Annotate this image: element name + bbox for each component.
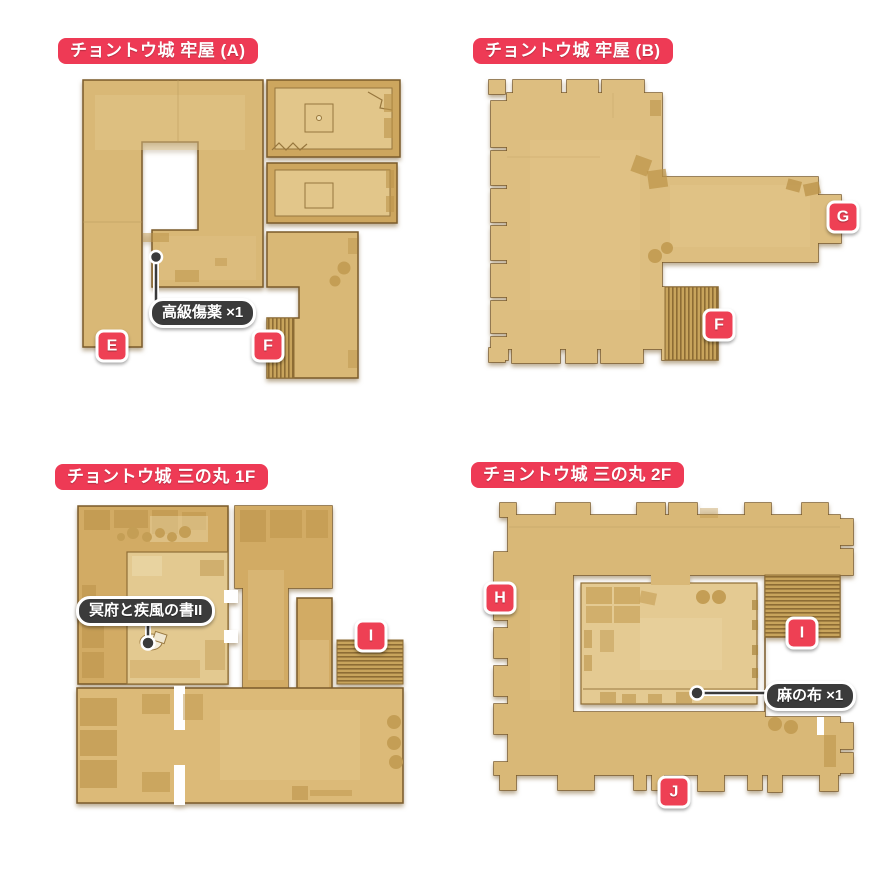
marker-i-1f: I [355, 620, 388, 653]
map-title-rouya-b: チョントウ城 牢屋 (B) [473, 38, 673, 64]
maps-artwork [0, 0, 880, 880]
item-label-meifu-sho: 冥府と疾風の書II [76, 596, 215, 626]
marker-e: E [96, 330, 129, 363]
floorplan-sannomaru-1f [77, 506, 403, 805]
marker-i-2f: I [786, 617, 819, 650]
marker-g: G [827, 201, 860, 234]
floorplan-rouya-a [83, 80, 400, 378]
marker-f-map-b: F [703, 309, 736, 342]
guide-map-page: チョントウ城 牢屋 (A) チョントウ城 牢屋 (B) チョントウ城 三の丸 1… [0, 0, 880, 880]
map-title-sannomaru-2f: チョントウ城 三の丸 2F [471, 462, 684, 488]
item-label-asa-no-nuno: 麻の布 ×1 [764, 681, 856, 711]
marker-h: H [484, 582, 517, 615]
marker-f-map-a: F [252, 330, 285, 363]
map-title-sannomaru-1f: チョントウ城 三の丸 1F [55, 464, 268, 490]
item-label-koukyuu-kizugusuri: 高級傷薬 ×1 [149, 298, 256, 328]
marker-j: J [658, 776, 691, 809]
floorplan-rouya-b [489, 80, 841, 363]
map-title-rouya-a: チョントウ城 牢屋 (A) [58, 38, 258, 64]
